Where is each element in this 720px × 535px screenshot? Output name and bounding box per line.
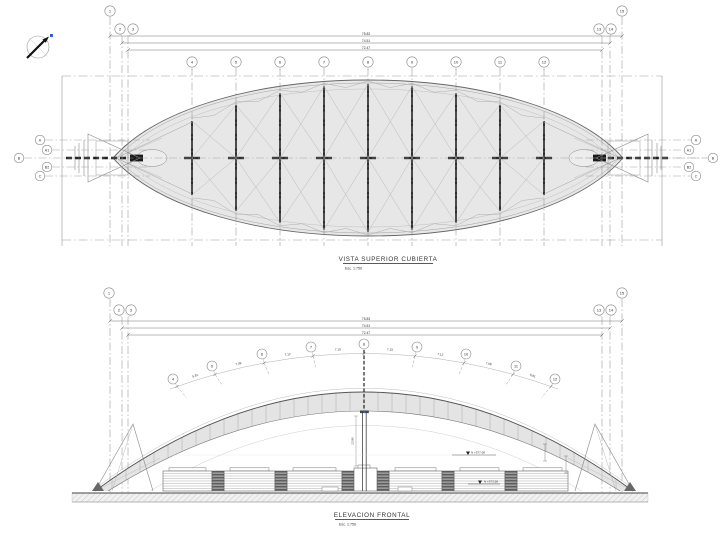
grid-line <box>313 356 316 367</box>
grid-bubble-label: 8 <box>363 342 365 346</box>
north-arrow-icon <box>27 34 53 58</box>
grid-bubble-label: 15 <box>620 290 625 295</box>
plan-scale-label: Esc. 1:750 <box>345 267 362 271</box>
grid-bubble-label: B2 <box>45 165 49 169</box>
arc-dimension-label: 7.12 <box>284 352 291 357</box>
grid-bubble-label: A1 <box>687 148 691 152</box>
grid-line <box>459 363 464 374</box>
plan-caption: VISTA SUPERIOR CUBIERTA Esc. 1:750 <box>339 256 438 271</box>
elevation-view: 12313141575.8374.5172.47 4567891011125.8… <box>72 288 648 527</box>
grid-bubble-label: 15 <box>620 8 625 13</box>
cad-drawing: 12313141575.8374.5172.47456789101112 AA1… <box>0 0 720 535</box>
arc-dimension-label: 5.81 <box>192 373 199 379</box>
grid-bubble-label: 13 <box>597 307 602 312</box>
dimension-label: 72.47 <box>362 331 370 335</box>
building-center-bay <box>354 468 377 491</box>
dimension-label: 75.83 <box>362 32 370 36</box>
grid-line <box>215 374 222 385</box>
level-marker-upper: N +577.08 <box>165 451 496 455</box>
plan-title: VISTA SUPERIOR CUBIERTA <box>339 256 438 263</box>
building-door <box>322 487 338 491</box>
grid-bubble-label: 14 <box>609 307 614 312</box>
grid-bubble-label: 13 <box>597 26 602 31</box>
grid-bubble-label: 10 <box>454 59 459 64</box>
grid-bubble-label: C <box>39 174 42 178</box>
building-roof-cap <box>460 468 499 471</box>
building-pier <box>212 471 224 491</box>
grid-bubble-label: 6 <box>261 352 263 356</box>
elevation-title: ELEVACION FRONTAL <box>334 512 410 519</box>
arc-dimension-label: 7.08 <box>485 361 492 366</box>
arc-dimension-label: 7.08 <box>235 361 242 366</box>
ground <box>72 493 648 502</box>
arc-dimension-label: 7.15 <box>387 347 393 351</box>
grid-leader <box>599 34 602 36</box>
grid-line <box>177 387 186 398</box>
grid-leader <box>119 315 122 317</box>
building-pier <box>442 471 454 491</box>
elevation-caption: ELEVACION FRONTAL Esc. 1:750 <box>334 512 410 527</box>
building-pier <box>505 471 517 491</box>
grid-bubble-label: 4 <box>172 377 174 381</box>
building-door <box>398 487 412 491</box>
building-pier <box>275 471 287 491</box>
grid-leader <box>128 34 133 36</box>
grid-bubble-label: 7 <box>310 345 312 349</box>
building-center-cap <box>358 465 370 468</box>
grid-bubble-label: 11 <box>514 364 518 368</box>
building-pier <box>342 471 354 491</box>
grid-bubble-label: 10 <box>464 352 468 356</box>
arc-dimension-label: 7.12 <box>437 352 444 357</box>
building-roof-cap <box>169 468 206 471</box>
dimension-tick <box>511 373 514 376</box>
grid-bubble-label: 12 <box>553 377 557 381</box>
column-height-dimension: 12.80 <box>351 416 359 466</box>
building-roof-cap <box>230 468 269 471</box>
arc-dimension-label: 7.15 <box>335 347 341 351</box>
column-dim-label: 12.80 <box>351 437 355 445</box>
plan-view: 12313141575.8374.5172.47456789101112 AA1… <box>14 6 718 271</box>
grid-bubble-label: A1 <box>45 148 49 152</box>
grid-bubble-label: 5 <box>211 364 213 368</box>
dimension-tick <box>213 373 216 376</box>
grid-line <box>506 374 513 385</box>
building-roof-cap <box>523 468 562 471</box>
dimension-label: 75.83 <box>362 317 370 321</box>
dimension-tick <box>549 385 552 388</box>
dimension-label: 74.51 <box>362 39 370 43</box>
building-roof-cap <box>293 468 336 471</box>
building-pier <box>377 471 389 491</box>
dimension-label: 74.51 <box>362 324 370 328</box>
grid-leader <box>128 315 131 317</box>
grid-line <box>412 356 415 367</box>
building-roof-cap <box>395 468 436 471</box>
grid-bubble-label: 12 <box>542 59 547 64</box>
drawing-sheet: 12313141575.8374.5172.47456789101112 AA1… <box>0 0 720 535</box>
blue-node-marker <box>363 411 365 413</box>
grid-bubble-label: B2 <box>687 165 691 169</box>
grid-bubble-label: 9 <box>416 345 418 349</box>
level-label-lower: N +573.58 <box>484 480 498 484</box>
level-label-upper: N +577.08 <box>471 451 485 455</box>
grid-leader <box>599 315 602 317</box>
elevation-scale-label: Esc. 1:750 <box>339 523 356 527</box>
grid-bubble-label: C <box>695 174 698 178</box>
dimension-label: 72.47 <box>362 46 370 50</box>
grid-leader <box>120 34 122 36</box>
arc-dimension-label: 5.81 <box>529 373 536 379</box>
grid-line <box>264 363 269 374</box>
grid-bubble-label: 14 <box>609 26 614 31</box>
